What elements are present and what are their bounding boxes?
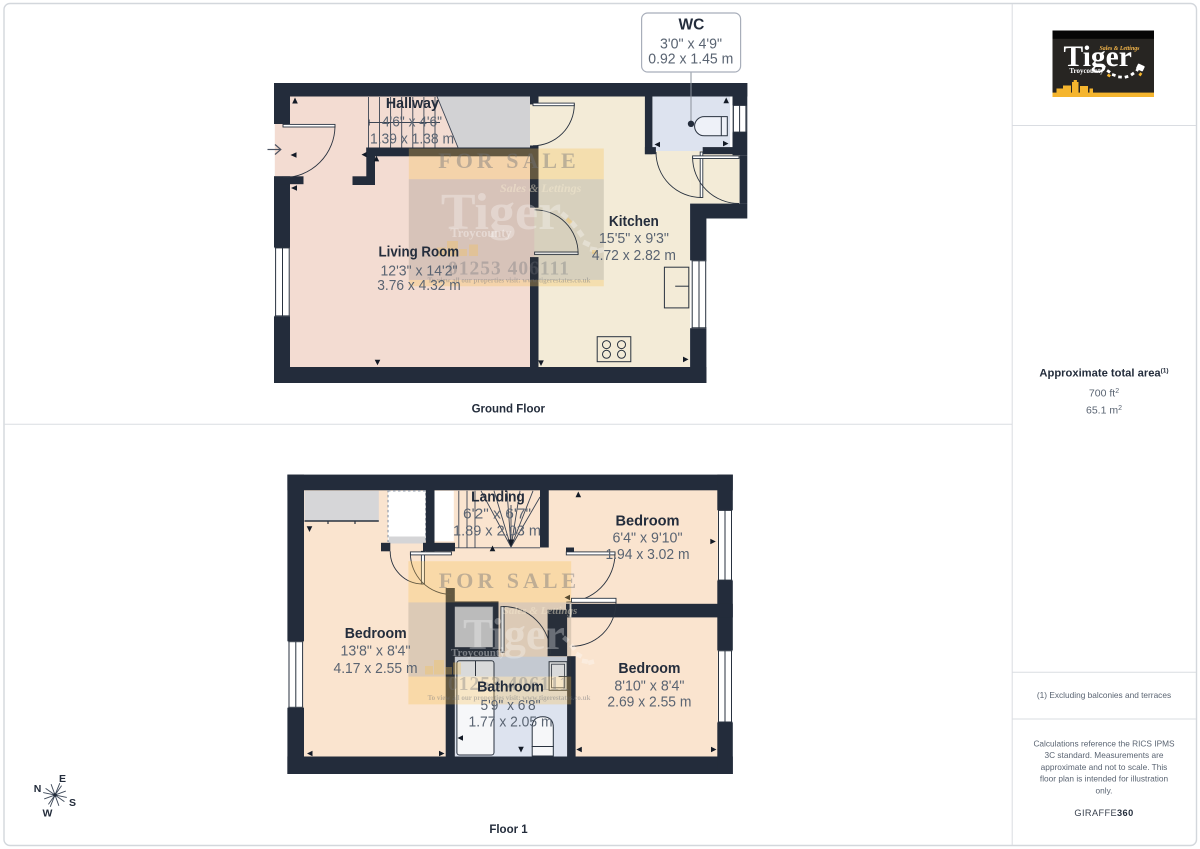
svg-text:65.1 m2: 65.1 m2 — [1086, 405, 1122, 417]
svg-text:WC: WC — [678, 17, 704, 34]
svg-text:only.: only. — [1096, 785, 1113, 795]
svg-text:N: N — [34, 783, 42, 795]
svg-text:700 ft2: 700 ft2 — [1089, 388, 1119, 400]
svg-text:Bathroom: Bathroom — [477, 678, 544, 695]
svg-text:1.89 x 2.03 m: 1.89 x 2.03 m — [453, 524, 541, 540]
svg-text:floor plan is intended for ill: floor plan is intended for illustration — [1040, 774, 1169, 784]
svg-text:Landing: Landing — [471, 489, 525, 506]
svg-text:Sales & Lettings: Sales & Lettings — [500, 181, 582, 195]
svg-text:Troycounty: Troycounty — [451, 647, 505, 659]
svg-text:Floor 1: Floor 1 — [489, 824, 528, 836]
svg-text:3.76 x 4.32 m: 3.76 x 4.32 m — [377, 278, 461, 294]
svg-text:Hallway: Hallway — [386, 95, 440, 112]
svg-text:1.77 x 2.05 m: 1.77 x 2.05 m — [469, 714, 553, 730]
svg-text:13'8" x 8'4": 13'8" x 8'4" — [341, 644, 411, 660]
svg-text:Bedroom: Bedroom — [345, 625, 407, 642]
svg-text:0.92 x 1.45 m: 0.92 x 1.45 m — [648, 50, 733, 67]
svg-text:5'9" x 6'8": 5'9" x 6'8" — [481, 698, 541, 714]
svg-text:1.39 x 1.38 m: 1.39 x 1.38 m — [370, 131, 454, 147]
svg-text:approximate and not to scale.: approximate and not to scale. This — [1041, 762, 1168, 772]
svg-text:8'10" x 8'4": 8'10" x 8'4" — [614, 678, 684, 694]
svg-text:Kitchen: Kitchen — [609, 213, 659, 230]
svg-text:GIRAFFE360: GIRAFFE360 — [1074, 808, 1133, 818]
svg-text:Living Room: Living Room — [379, 244, 460, 261]
svg-text:Sales & Lettings: Sales & Lettings — [1100, 46, 1141, 52]
svg-text:1.94 x 3.02 m: 1.94 x 3.02 m — [606, 547, 690, 563]
svg-text:4'6" x 4'6": 4'6" x 4'6" — [382, 114, 442, 130]
svg-text:15'5" x 9'3": 15'5" x 9'3" — [599, 231, 669, 247]
svg-text:2.69 x 2.55 m: 2.69 x 2.55 m — [607, 695, 691, 711]
svg-text:Bedroom: Bedroom — [618, 660, 680, 677]
svg-text:(1) Excluding balconies and te: (1) Excluding balconies and terraces — [1037, 690, 1171, 700]
svg-text:Bedroom: Bedroom — [616, 512, 680, 529]
svg-text:W: W — [43, 808, 53, 820]
svg-text:FOR SALE: FOR SALE — [439, 568, 580, 593]
svg-text:6'2" x 6'7": 6'2" x 6'7" — [463, 507, 531, 523]
svg-text:FOR SALE: FOR SALE — [438, 148, 579, 173]
svg-text:Sales & Lettings: Sales & Lettings — [503, 605, 578, 617]
svg-text:E: E — [59, 773, 66, 785]
svg-text:Approximate total area(1): Approximate total area(1) — [1039, 368, 1168, 380]
svg-text:Ground Floor: Ground Floor — [472, 403, 546, 415]
svg-text:6'4" x 9'10": 6'4" x 9'10" — [613, 530, 683, 546]
svg-text:Troycounty: Troycounty — [1069, 67, 1104, 75]
svg-text:S: S — [69, 797, 76, 809]
svg-text:Calculations reference the RIC: Calculations reference the RICS IPMS — [1033, 739, 1175, 749]
svg-text:4.17 x 2.55 m: 4.17 x 2.55 m — [334, 661, 418, 677]
svg-text:3C standard. Measurements are: 3C standard. Measurements are — [1045, 750, 1164, 760]
svg-text:4.72 x 2.82 m: 4.72 x 2.82 m — [592, 248, 676, 264]
svg-text:Troycounty: Troycounty — [450, 226, 512, 240]
